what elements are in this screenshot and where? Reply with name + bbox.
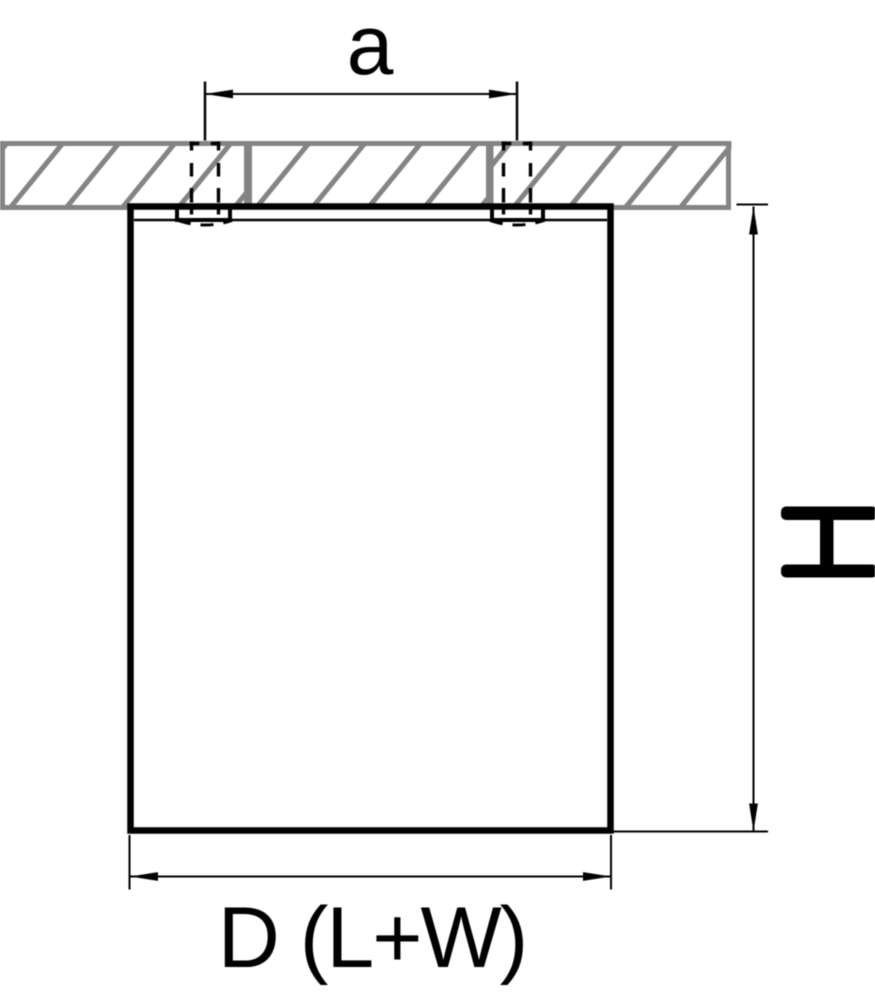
svg-text:D (L+W): D (L+W) <box>218 890 527 986</box>
svg-text:a: a <box>347 0 394 92</box>
